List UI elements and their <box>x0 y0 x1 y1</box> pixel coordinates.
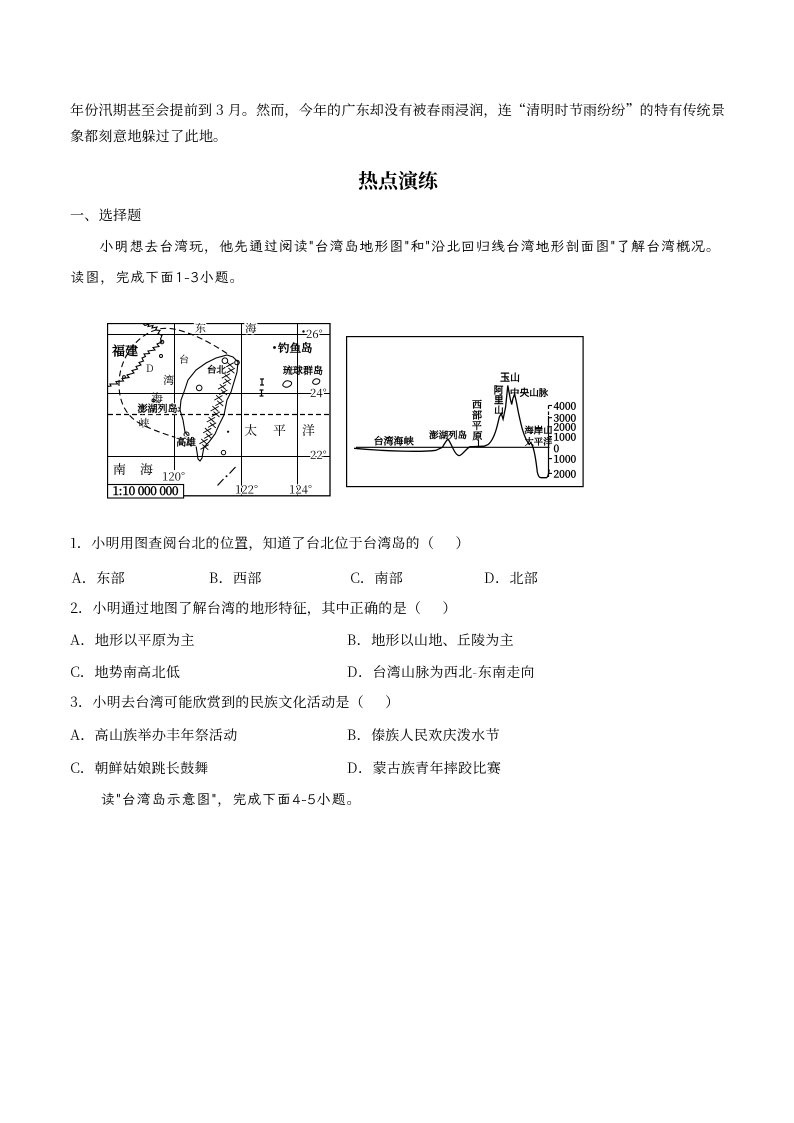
svg-text:122°: 122° <box>235 482 258 498</box>
svg-text:福建: 福建 <box>111 341 139 360</box>
svg-text:1:10 000 000: 1:10 000 000 <box>113 482 179 499</box>
svg-text:120°: 120° <box>162 469 185 485</box>
svg-text:原: 原 <box>472 428 483 443</box>
svg-text:南海: 南海 <box>113 459 167 478</box>
svg-text:台湾海峡: 台湾海峡 <box>374 433 415 448</box>
svg-text:台北: 台北 <box>207 362 227 376</box>
svg-text:26°: 26° <box>306 326 323 342</box>
svg-text:海: 海 <box>245 323 256 336</box>
svg-text:琉球群岛: 琉球群岛 <box>282 362 323 377</box>
svg-text:1000: 1000 <box>554 451 577 466</box>
svg-text:峡: 峡 <box>139 415 150 431</box>
svg-text:湾: 湾 <box>163 372 174 388</box>
svg-text:澎湖列岛: 澎湖列岛 <box>138 400 178 415</box>
svg-text:太平洋: 太平洋 <box>525 434 554 448</box>
svg-text:24°: 24° <box>310 385 327 401</box>
svg-text:2000: 2000 <box>554 465 577 480</box>
svg-text:山: 山 <box>494 403 504 417</box>
svg-text:中央山脉: 中央山脉 <box>510 385 549 399</box>
svg-text:D: D <box>146 360 154 375</box>
svg-text:高雄: 高雄 <box>176 434 197 449</box>
svg-text:124°: 124° <box>289 482 312 498</box>
svg-text:太平洋: 太平洋 <box>244 420 331 439</box>
svg-text:22°: 22° <box>310 447 327 463</box>
svg-text:台: 台 <box>179 351 189 366</box>
svg-text:澎湖列岛: 澎湖列岛 <box>429 428 468 442</box>
svg-text:东: 东 <box>195 323 206 336</box>
svg-text:钓鱼岛: 钓鱼岛 <box>277 340 313 356</box>
